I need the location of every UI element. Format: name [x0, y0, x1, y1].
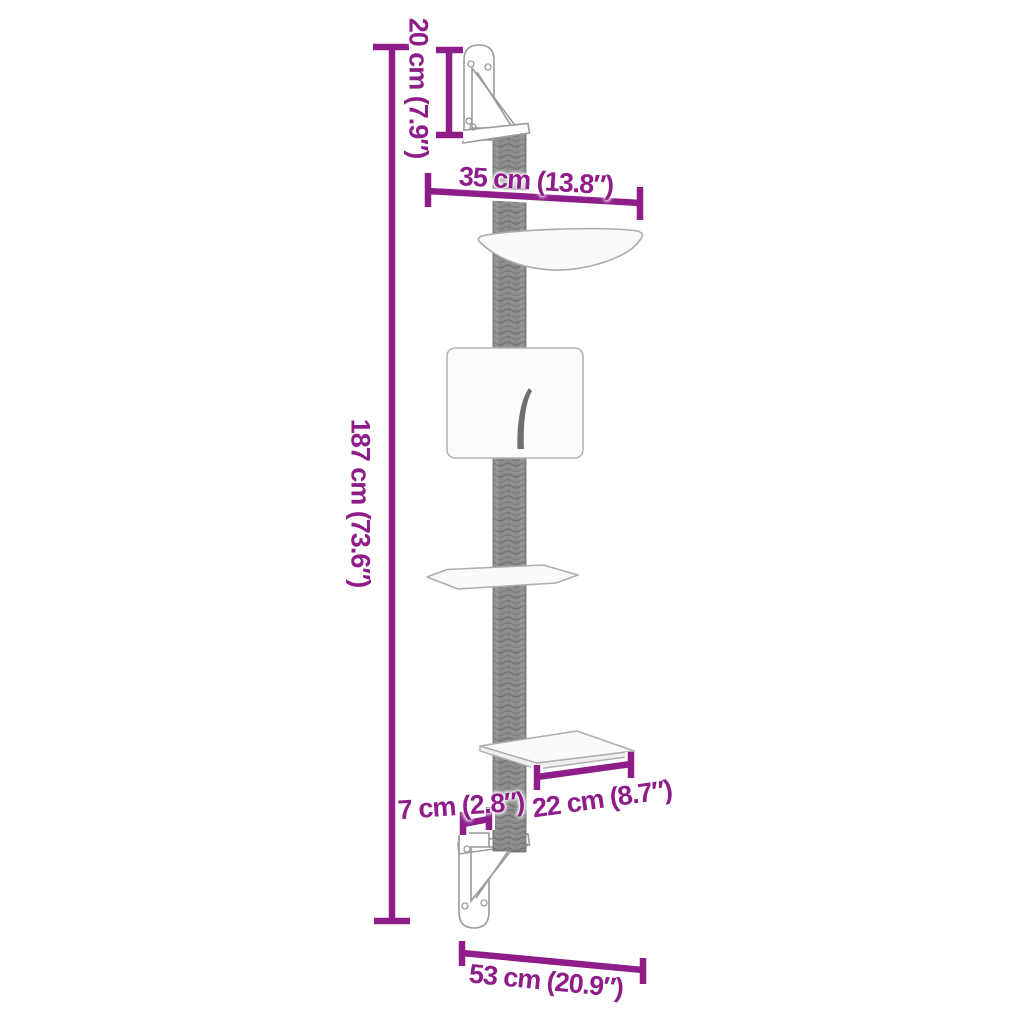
dimension-label-bracket-height: 20 cm (7.9″) [404, 18, 432, 159]
upper-platform [427, 565, 578, 589]
dimension-diagram: 187 cm (73.6″) 20 cm (7.9″) 35 cm (13.8″… [0, 0, 1024, 1024]
top-wall-bracket [461, 45, 530, 143]
diagram-canvas [0, 0, 1024, 1024]
cat-house [447, 348, 583, 458]
dimension-label-total-height: 187 cm (73.6″) [346, 419, 374, 588]
